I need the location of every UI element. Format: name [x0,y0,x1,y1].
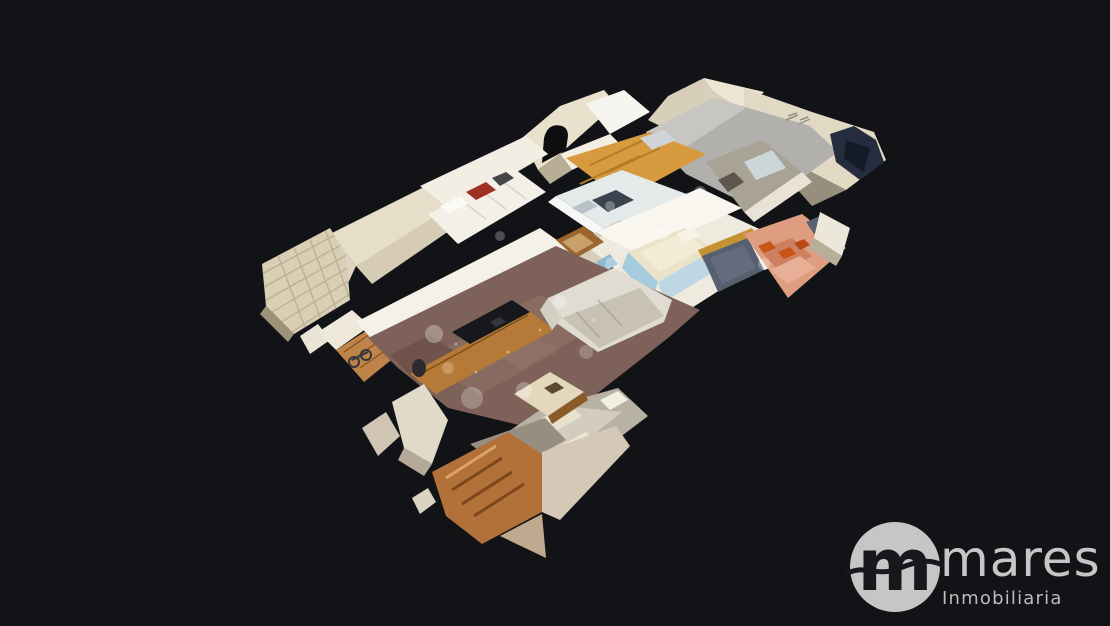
brand-name: mares [940,530,1101,588]
mares-logo-icon: m [846,522,944,612]
viewer-stage[interactable]: m mares Inmobiliaria [0,0,1110,626]
terrace [744,212,850,298]
logo-monogram: m [857,523,932,607]
brand-watermark: m mares Inmobiliaria [842,514,1110,624]
brand-tagline: Inmobiliaria [942,588,1063,609]
speaker [412,359,426,377]
